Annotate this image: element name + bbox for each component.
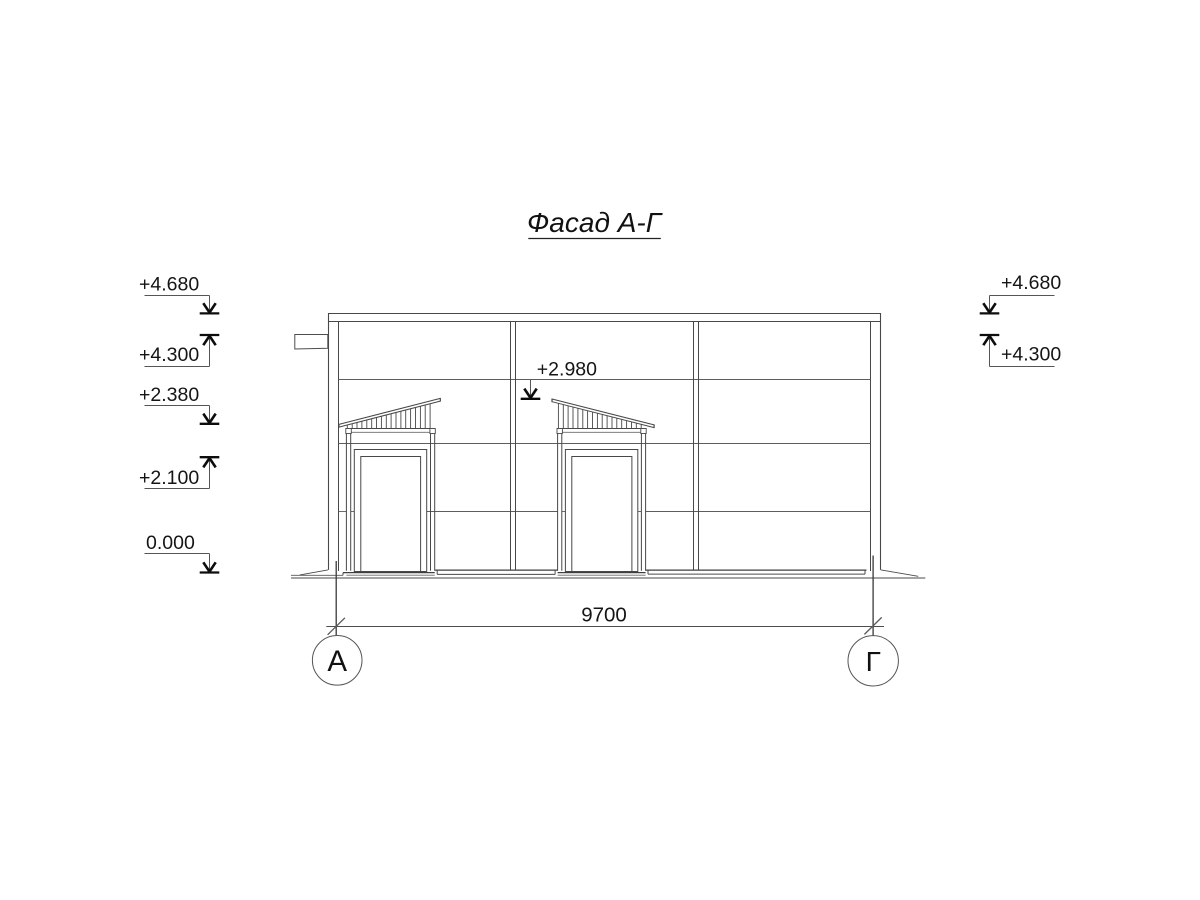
svg-text:Г: Г [866,646,881,677]
svg-text:А: А [327,645,347,678]
svg-text:+4.680: +4.680 [139,274,199,296]
svg-text:9700: 9700 [581,603,627,626]
svg-text:+2.100: +2.100 [139,467,199,489]
svg-text:+4.680: +4.680 [1001,272,1061,294]
svg-text:+2.980: +2.980 [537,358,597,380]
svg-text:+4.300: +4.300 [1001,344,1061,366]
svg-text:Фасад А-Г: Фасад А-Г [527,207,663,238]
svg-text:0.000: 0.000 [146,532,195,554]
svg-text:+4.300: +4.300 [139,344,199,366]
svg-text:+2.380: +2.380 [139,384,199,406]
